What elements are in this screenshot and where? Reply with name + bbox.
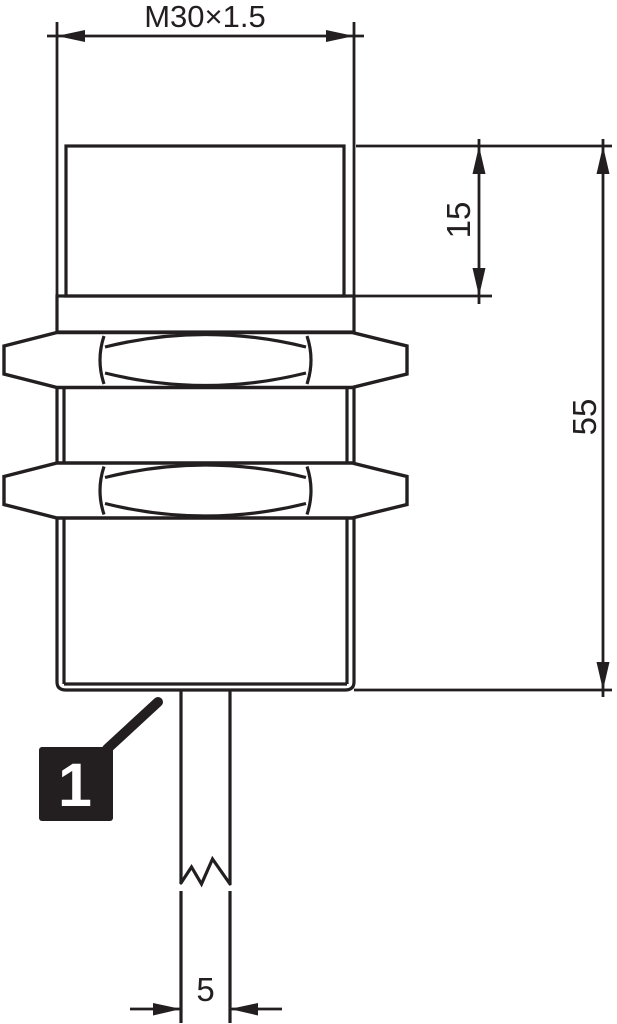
arrow-right-icon xyxy=(326,30,354,42)
thread-dimension-label: M30×1.5 xyxy=(144,0,266,34)
technical-drawing: M30×1.5 15 55 5 1 xyxy=(0,0,617,1024)
overall-dimension-label: 55 xyxy=(566,399,603,436)
hex-nut-upper xyxy=(4,333,407,388)
sensor-body-outline xyxy=(57,516,354,690)
hex-nut-lower xyxy=(4,463,407,518)
arrow-right-icon xyxy=(153,1003,181,1016)
arrow-up-icon xyxy=(473,146,486,174)
callout-leader-line xyxy=(107,702,158,749)
sensor-head-outline xyxy=(66,146,344,296)
head-dimension-label: 15 xyxy=(440,202,477,239)
cable-break-icon xyxy=(181,859,230,884)
arrow-left-icon xyxy=(57,30,85,42)
arrow-left-icon xyxy=(230,1003,258,1016)
arrow-up-icon xyxy=(597,146,610,174)
cable-dimension-label: 5 xyxy=(196,971,214,1008)
callout-1-label: 1 xyxy=(58,751,92,819)
arrow-down-icon xyxy=(473,268,486,296)
drawing-canvas: M30×1.5 15 55 5 1 xyxy=(0,0,617,1024)
arrow-down-icon xyxy=(597,662,610,690)
sensor-collar-outline xyxy=(57,296,354,332)
